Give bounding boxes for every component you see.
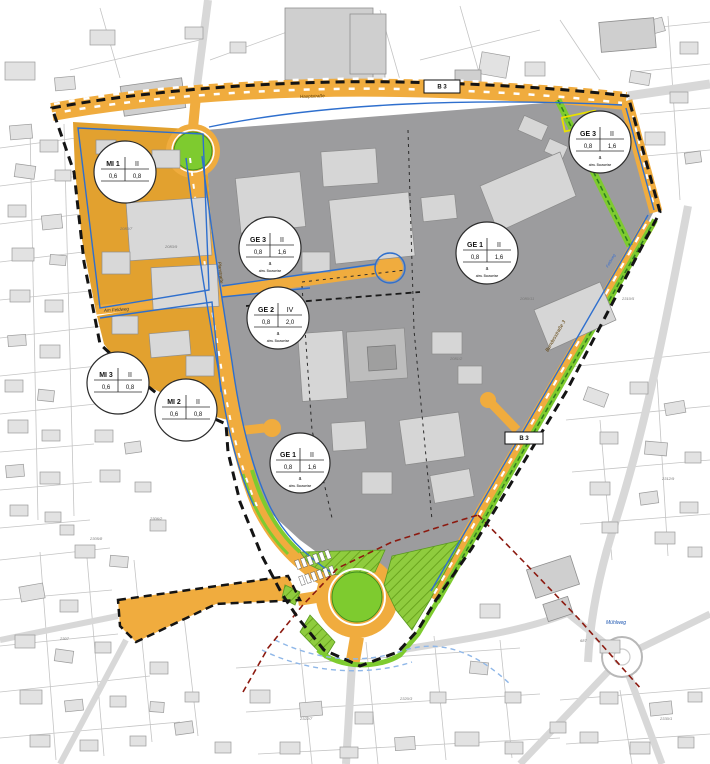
outside-building [430, 692, 446, 703]
outside-building [6, 464, 25, 478]
zone-label-ge1-b-text: 0,8 [284, 465, 293, 471]
outside-building [455, 732, 479, 746]
zone-label-ge1-b-text: 1,6 [308, 465, 317, 471]
outside-building [110, 696, 126, 707]
outside-building [478, 52, 509, 79]
outside-building [678, 737, 694, 748]
outside-building [150, 520, 166, 531]
outside-building [60, 600, 78, 612]
outside-building [5, 62, 35, 80]
outside-industrial-building [526, 556, 579, 599]
outside-building [525, 62, 545, 76]
outside-building [649, 701, 672, 716]
zone-label-ge1-a-text: 0,8 [471, 255, 480, 261]
outside-building [12, 248, 34, 261]
zone-label-ge1-a-text: abw. Bauweise [476, 274, 499, 278]
road-ref-box-top: B 3 [424, 80, 460, 93]
ge-building [329, 192, 415, 264]
outside-building [10, 290, 30, 302]
zone-label-ge1-b-text: abw. Bauweise [289, 484, 312, 488]
outside-building [40, 140, 58, 152]
parcel-number: 2322/7 [299, 716, 313, 721]
outside-building [130, 736, 146, 746]
zone-label-mi3-text: II [128, 372, 132, 379]
outside-building [90, 30, 115, 45]
zone-label-ge2-text: abw. Bauweise [267, 339, 290, 343]
outside-building [14, 164, 36, 180]
outside-building [54, 76, 75, 91]
outside-building [655, 532, 675, 544]
zone-label-mi1-text: II [135, 161, 139, 168]
outside-building [110, 555, 129, 568]
zone-label-mi1-text: 0,6 [109, 174, 118, 180]
mi-building [149, 330, 191, 357]
outside-building [688, 692, 702, 702]
outside-building [135, 482, 151, 492]
zone-label-mi2-text: MI 2 [167, 399, 181, 406]
outside-building [150, 662, 168, 674]
ge-building-darker [367, 345, 397, 371]
ge-building [399, 412, 465, 465]
zone-label-ge1-a-text: 1,6 [495, 255, 504, 261]
zone-label-ge2-text: 2,0 [286, 320, 295, 326]
zone-label-mi3-text: 0,8 [126, 385, 135, 391]
outside-building [8, 205, 26, 217]
ge-building [421, 194, 457, 221]
outside-building [5, 380, 23, 392]
outside-building [505, 692, 521, 703]
zone-label-mi2: MI 2II0,60,8 [155, 379, 217, 441]
outside-building [639, 491, 658, 505]
zone-label-ge1-b: GE 1II0,81,6aabw. Bauweise [270, 433, 330, 493]
outside-building [95, 642, 111, 653]
parcel-number: 2306/2 [149, 516, 163, 521]
zone-label-ge2: GE 2IV0,82,0aabw. Bauweise [247, 287, 309, 349]
parking-stall [299, 576, 306, 586]
street-label-hauptstrasse: Hauptstraße [300, 93, 325, 99]
outside-building [185, 692, 199, 702]
zone-label-ge2-text: a [277, 331, 280, 337]
outside-building [590, 482, 610, 495]
zone-label-ge3-a: GE 3II0,81,6aabw. Bauweise [239, 217, 301, 279]
outside-building [680, 42, 698, 54]
outside-building [100, 470, 120, 482]
outside-building [55, 170, 71, 181]
outside-building [54, 649, 73, 663]
zone-label-ge3-a-text: GE 3 [250, 237, 266, 244]
outside-building [644, 441, 667, 456]
outside-building [60, 525, 74, 535]
outside-building [37, 389, 54, 402]
outside-building [280, 742, 300, 754]
outside-building [150, 702, 165, 713]
ge-building [458, 366, 482, 384]
parcel-number: 2312/9 [661, 476, 675, 481]
zone-label-mi3: MI 3II0,60,8 [87, 352, 149, 414]
parcel-number: 2307 [59, 636, 70, 641]
outside-building [9, 124, 32, 140]
road-stub-bulb [263, 419, 281, 437]
outside-building [64, 699, 83, 712]
outside-building [299, 701, 322, 717]
parcel-number: 2083/9 [164, 244, 178, 249]
roundabout-south-green [332, 572, 382, 622]
outside-building [75, 545, 95, 558]
mi-building [186, 356, 214, 376]
outside-building [630, 382, 648, 394]
outside-building [50, 254, 67, 265]
outside-building [45, 512, 61, 522]
parcel-number: 2330/1 [659, 716, 672, 721]
outside-building [10, 505, 28, 516]
outside-building [185, 27, 203, 39]
zone-label-ge1-b-text: GE 1 [280, 452, 296, 459]
outside-building [80, 740, 98, 751]
zone-label-ge3-b-text: a [599, 155, 602, 161]
mi-building [152, 150, 180, 168]
outside-building [174, 721, 193, 735]
ge-building [298, 331, 348, 402]
outside-building [645, 132, 665, 145]
outside-building [230, 42, 246, 53]
street-label-muehlweg: Mühlweg [606, 620, 626, 626]
zone-label-mi2-text: 0,6 [170, 412, 179, 418]
outside-building [688, 547, 702, 557]
zone-label-ge1-a-text: a [486, 266, 489, 272]
zone-label-ge1-b-text: a [299, 476, 302, 482]
mi-building [102, 252, 130, 274]
parcel-number: 2310/5 [621, 296, 635, 301]
parcel-number: 2080/11 [519, 296, 534, 301]
outside-building [670, 92, 688, 103]
outside-road [628, 84, 710, 96]
outside-industrial-building [350, 14, 386, 74]
zone-label-ge2-text: GE 2 [258, 307, 274, 314]
outside-building [40, 472, 60, 484]
outside-building [215, 742, 231, 753]
outside-building [480, 604, 500, 618]
outside-building [664, 400, 686, 415]
outside-building [469, 661, 488, 675]
outside-building [8, 334, 27, 346]
ge-building [362, 472, 392, 494]
outside-building [580, 732, 598, 743]
outside-building [8, 420, 28, 433]
zone-label-mi1-text: 0,8 [133, 174, 142, 180]
outside-building [40, 345, 60, 358]
outside-building [355, 712, 373, 724]
zone-label-ge3-b-text: abw. Bauweise [589, 163, 612, 167]
zone-label-ge3-a-text: a [269, 261, 272, 267]
zone-label-ge1-a-text: II [497, 242, 501, 249]
parcel-number: 2082/4 [339, 296, 353, 301]
outside-building [684, 151, 701, 164]
outside-building [602, 522, 618, 533]
zone-label-ge3-b: GE 3II0,81,6aabw. Bauweise [569, 111, 631, 173]
zone-label-ge2-text: IV [287, 307, 294, 314]
outside-building [680, 502, 698, 513]
ge-building [321, 148, 378, 187]
zone-label-mi2-text: 0,8 [194, 412, 203, 418]
zone-label-ge3-b-text: 0,8 [584, 144, 593, 150]
parcel-number: 2083/7 [119, 226, 133, 231]
zone-label-mi3-text: 0,6 [102, 385, 111, 391]
zone-label-ge3-a-text: II [280, 237, 284, 244]
outside-building [630, 742, 650, 754]
outside-building [30, 735, 50, 747]
ge-building [331, 421, 367, 451]
zone-label-ge1-a-text: GE 1 [467, 242, 483, 249]
outside-building [340, 747, 358, 758]
zone-label-ge2-text: 0,8 [262, 320, 271, 326]
outside-building [124, 441, 141, 454]
outside-building [42, 430, 60, 441]
road-ref-box-top-text: B 3 [437, 85, 447, 91]
outside-building [20, 690, 42, 704]
outside-building [550, 722, 566, 733]
zone-label-ge3-b-text: 1,6 [608, 144, 617, 150]
outside-building [45, 300, 63, 312]
outside-building [15, 635, 35, 648]
zone-label-mi2-text: II [196, 399, 200, 406]
zone-label-ge3-b-text: II [610, 131, 614, 138]
outside-industrial-building [599, 18, 656, 53]
parcel-number: 2081/2 [449, 356, 463, 361]
outside-building [505, 742, 523, 754]
zone-label-ge3-a-text: 0,8 [254, 250, 263, 256]
road-north-stub [193, 96, 196, 128]
outside-building [95, 430, 113, 442]
outside-building [600, 432, 618, 444]
ge-building [432, 332, 462, 354]
road-ref-box-se: B 3 [505, 432, 543, 444]
zone-label-ge3-a-text: 1,6 [278, 250, 287, 256]
outside-building [41, 214, 62, 230]
parcel-number: 687 [580, 638, 587, 643]
outside-building [629, 70, 651, 85]
zone-label-ge3-b-text: GE 3 [580, 131, 596, 138]
outside-building [583, 387, 608, 408]
parcel-number: 2305/8 [89, 536, 103, 541]
mi-building [112, 316, 138, 334]
outside-building [600, 692, 618, 704]
outside-building [395, 736, 416, 750]
zone-label-mi3-text: MI 3 [99, 372, 113, 379]
zone-label-ge1-b-text: II [310, 452, 314, 459]
outside-building [685, 452, 701, 463]
zone-label-ge3-a-text: abw. Bauweise [259, 269, 282, 273]
zone-label-ge1-a: GE 1II0,81,6aabw. Bauweise [456, 222, 518, 284]
zone-label-mi1-text: MI 1 [106, 161, 120, 168]
map-canvas: HauptstraßePlanstraßeBundesstraße 3Am Fe… [0, 0, 710, 764]
road-stub-bulb [480, 392, 496, 408]
outside-building [250, 690, 270, 703]
green-area-west-of-roundabout [282, 585, 300, 605]
plan-map: HauptstraßePlanstraßeBundesstraße 3Am Fe… [0, 0, 710, 764]
outside-road [196, 0, 208, 94]
parcel-number: 2320/3 [399, 696, 413, 701]
ge-building [302, 252, 330, 272]
road-ref-box-se-text: B 3 [519, 436, 529, 442]
zone-label-mi1: MI 1II0,60,8 [94, 141, 156, 203]
outside-building [19, 583, 45, 602]
